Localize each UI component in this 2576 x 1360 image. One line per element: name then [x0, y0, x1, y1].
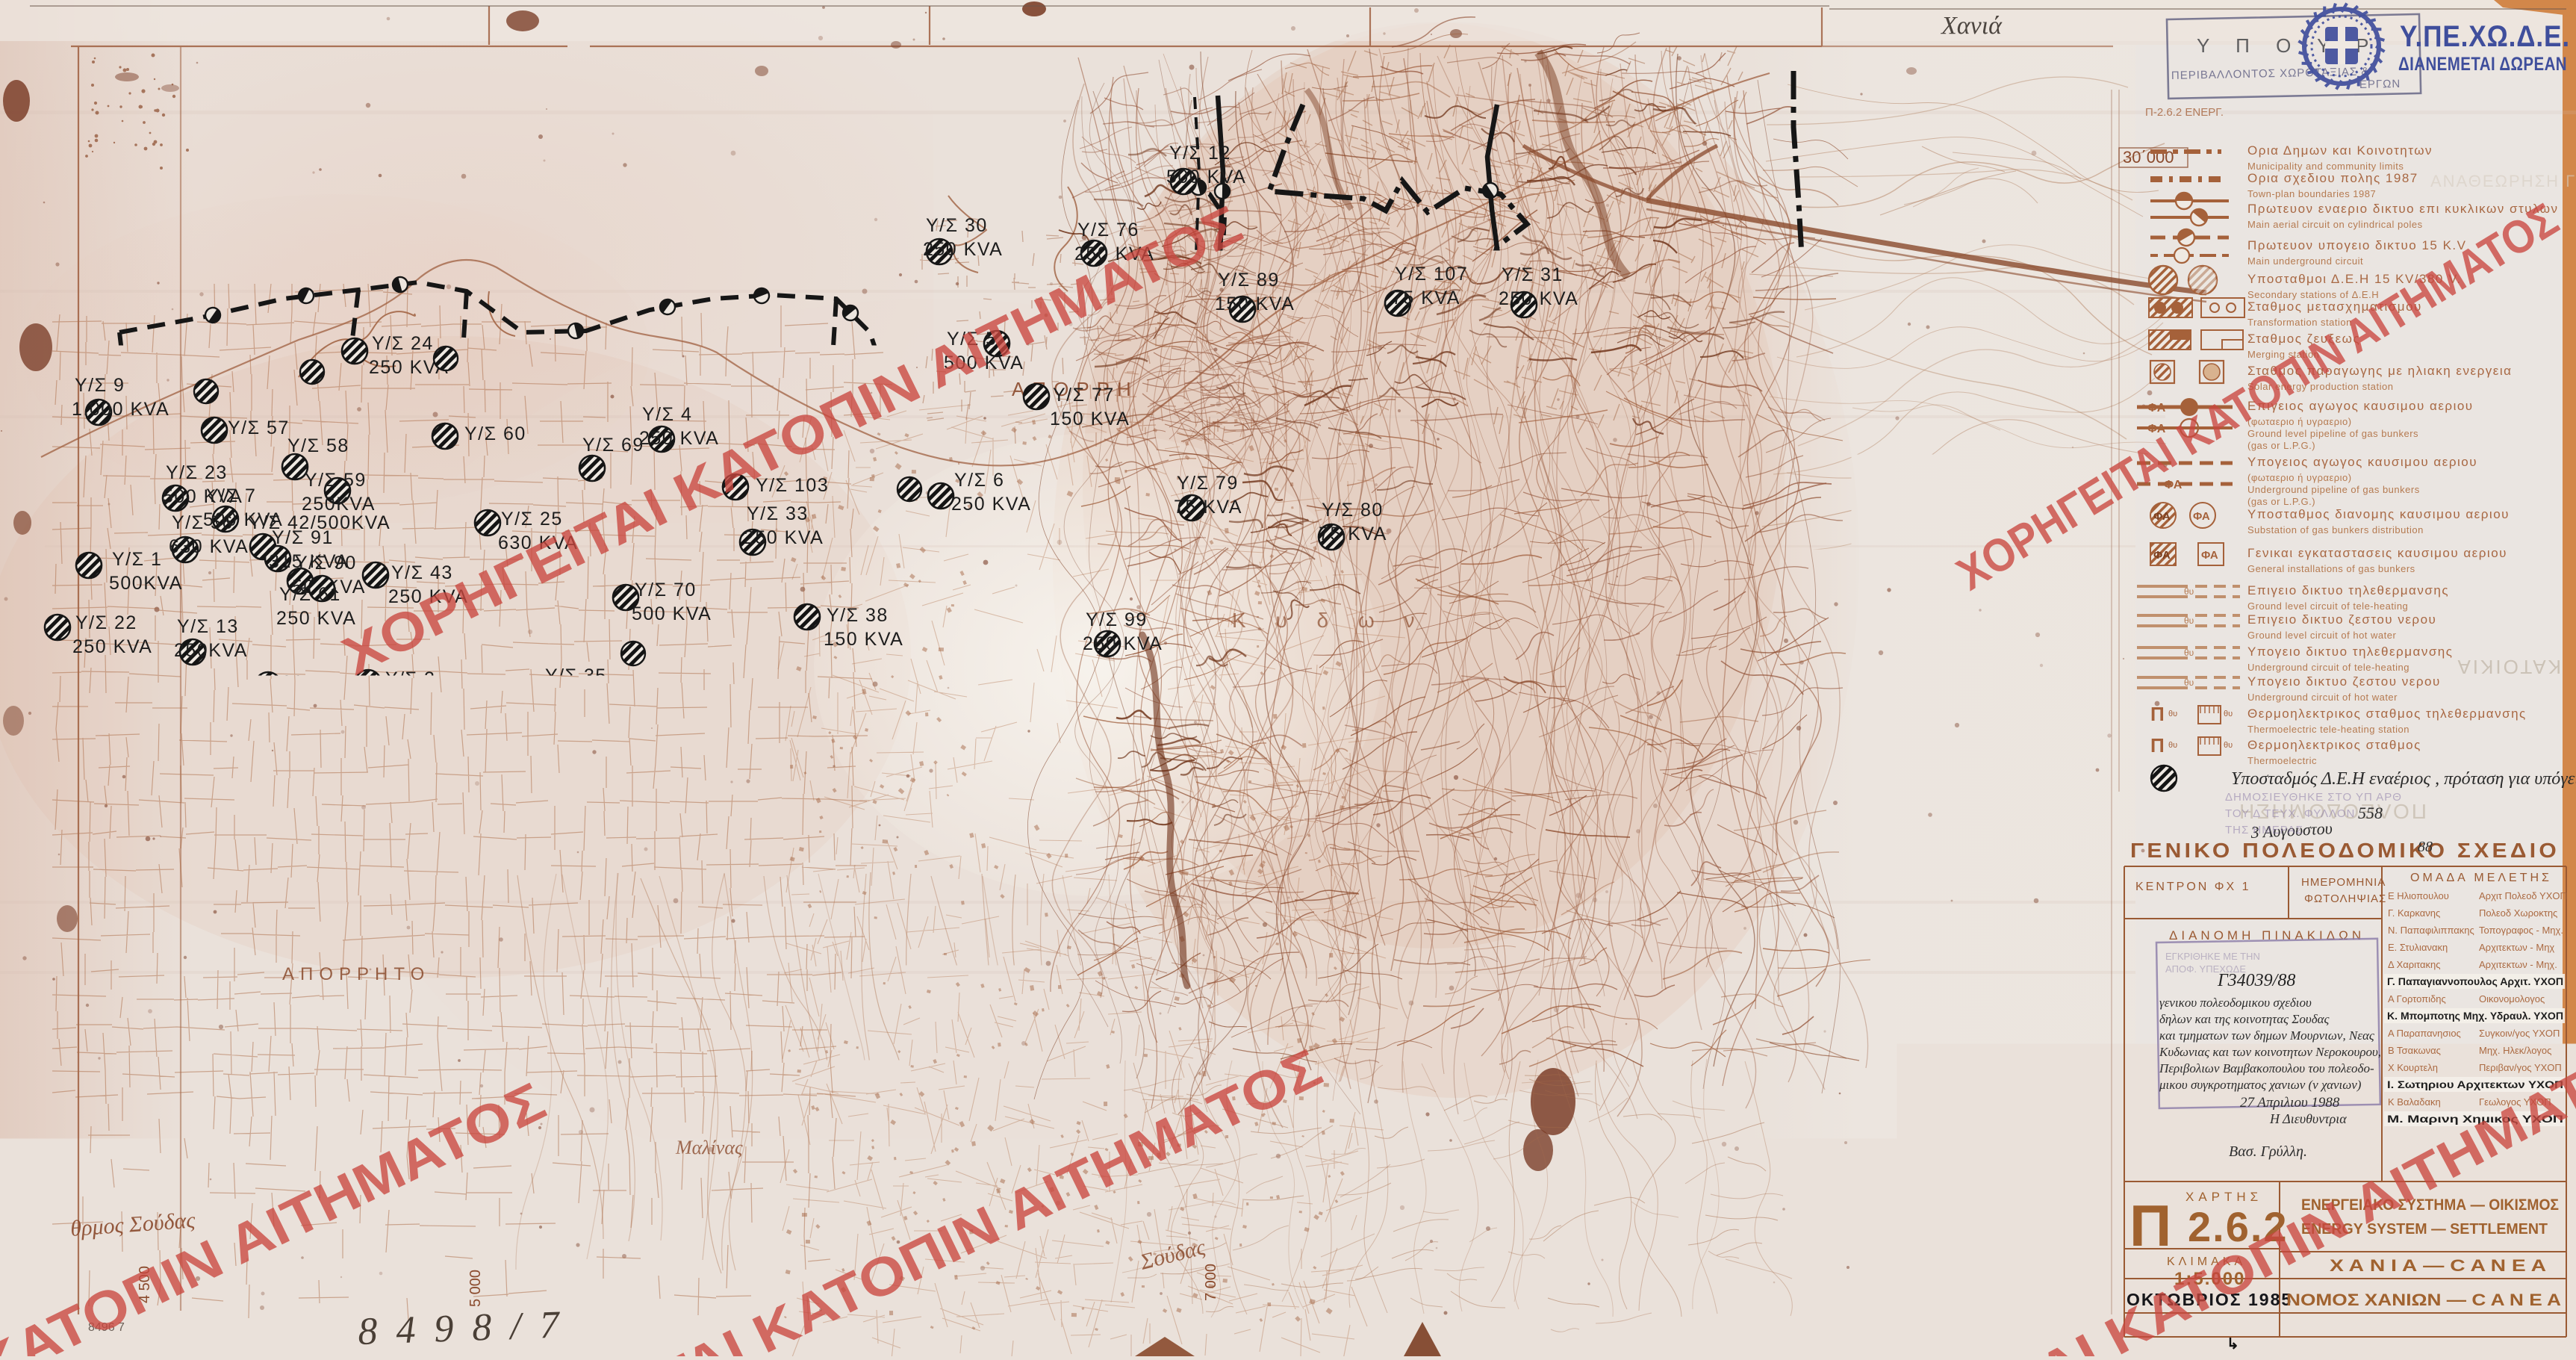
svg-text:Υ/Σ 79: Υ/Σ 79	[1177, 473, 1239, 494]
svg-text:Υ/Σ 74: Υ/Σ 74	[826, 745, 888, 766]
svg-text:Υπογειος αγωγος καυσιμου αεριο: Υπογειος αγωγος καυσιμου αεριου	[2247, 455, 2477, 469]
svg-text:(gas or L.P.G.): (gas or L.P.G.)	[2247, 496, 2315, 507]
svg-text:μικου συγκροτηματος χανιων (ν: μικου συγκροτηματος χανιων (ν χανιων)	[2159, 1078, 2362, 1092]
svg-text:Υ/Σ 38: Υ/Σ 38	[827, 605, 889, 626]
svg-text:Υ/Σ 52: Υ/Σ 52	[53, 993, 115, 1013]
svg-text:Υ/Σ 63: Υ/Σ 63	[434, 894, 496, 915]
svg-text:Α Παραπανησιος: Α Παραπανησιος	[2388, 1028, 2461, 1039]
svg-text:250 KVA: 250 KVA	[724, 922, 804, 943]
svg-text:Βασ. Γρύλλη.: Βασ. Γρύλλη.	[2229, 1143, 2307, 1160]
svg-text:ΕΓΚΡΙΘΗΚΕ ΜΕ ΤΗΝ: ΕΓΚΡΙΘΗΚΕ ΜΕ ΤΗΝ	[2165, 951, 2260, 962]
svg-text:Υ/Σ 7: Υ/Σ 7	[206, 485, 256, 506]
svg-text:500 KVA: 500 KVA	[1166, 167, 1246, 187]
svg-text:Υποσταδμός Δ.Ε.Η εναέριος ,: Υποσταδμός Δ.Ε.Η εναέριος , πρόταση για …	[2231, 769, 2576, 789]
svg-text:ΑΠΟΡΡΗΤΟ: ΑΠΟΡΡΗΤΟ	[1941, 792, 2075, 810]
svg-text:5 000: 5 000	[467, 1270, 484, 1307]
svg-text:29 000: 29 000	[2065, 845, 2113, 863]
svg-text:250 KVA: 250 KVA	[1083, 633, 1163, 654]
svg-text:250 KVA: 250 KVA	[923, 239, 1003, 260]
svg-text:Πρωτευον υπογειο δικτυο 15: Πρωτευον υπογειο δικτυο 15 K.V	[2247, 238, 2466, 252]
svg-text:Ε. Στυλιανακη: Ε. Στυλιανακη	[2388, 942, 2448, 953]
svg-text:Υ.ΠΕ.ΧΩ.Δ.Ε.: Υ.ΠΕ.ΧΩ.Δ.Ε.	[2400, 20, 2570, 53]
svg-text:Υ/Σ 4: Υ/Σ 4	[642, 404, 692, 425]
svg-text:ΦΑ: ΦΑ	[2153, 510, 2171, 523]
svg-text:Ν. Παπαφιλιππακης: Ν. Παπαφιλιππακης	[2388, 925, 2474, 936]
svg-text:Υ/Σ 66: Υ/Σ 66	[582, 993, 644, 1013]
svg-text:Δ Χαριτακης: Δ Χαριτακης	[2388, 959, 2441, 970]
svg-text:Υ/Σ 104: Υ/Σ 104	[207, 836, 280, 857]
svg-text:Υ/Σ 26: Υ/Σ 26	[311, 818, 373, 839]
svg-text:150 KVA: 150 KVA	[1050, 409, 1130, 429]
svg-text:θυ: θυ	[2168, 710, 2177, 718]
svg-text:Υ/Σ 32: Υ/Σ 32	[243, 672, 305, 693]
svg-text:Underground circuit of hot wat: Underground circuit of hot water	[2247, 692, 2398, 703]
svg-text:250 KVA: 250 KVA	[277, 1041, 357, 1062]
svg-text:Π: Π	[2150, 703, 2165, 725]
svg-text:ΔΗΜΟΣΙΕΥΘΗΚΕ ΣΤΟ ΥΠ ΑΡΘ: ΔΗΜΟΣΙΕΥΘΗΚΕ ΣΤΟ ΥΠ ΑΡΘ	[2225, 791, 2402, 804]
svg-text:Β Τσακωνας: Β Τσακωνας	[2388, 1045, 2441, 1056]
svg-text:Αρχιτεκτων - Μηχ: Αρχιτεκτων - Μηχ	[2479, 942, 2554, 953]
svg-text:Υ/Σ 58: Υ/Σ 58	[287, 435, 349, 456]
svg-text:500 KVA: 500 KVA	[632, 603, 712, 624]
svg-text:ΦΑ: ΦΑ	[2201, 549, 2218, 562]
svg-text:θυ: θυ	[2224, 710, 2233, 718]
svg-text:Πολεοδ Χωροκτης: Πολεοδ Χωροκτης	[2479, 907, 2557, 919]
svg-text:75 KVA: 75 KVA	[1392, 288, 1460, 308]
svg-text:ΗΜΕΡΟΜΗΝΙΑ: ΗΜΕΡΟΜΗΝΙΑ	[2301, 876, 2386, 889]
svg-text:ΤΗΣ ΗΜΕΡΑΣ: ΤΗΣ ΗΜΕΡΑΣ	[2225, 824, 2303, 836]
svg-text:Υ/Σ 69: Υ/Σ 69	[582, 435, 644, 456]
svg-text:Town-plan boundaries 1987: Town-plan boundaries 1987	[2247, 188, 2376, 199]
svg-text:250KVA: 250KVA	[308, 842, 382, 863]
svg-text:δηλων και της κοινοτητας Σουδ: δηλων και της κοινοτητας Σουδας	[2159, 1012, 2330, 1026]
svg-text:Υ/Σ 72: Υ/Σ 72	[727, 805, 789, 826]
svg-text:Υ/Σ 89: Υ/Σ 89	[1218, 270, 1280, 291]
svg-text:250 KVA: 250 KVA	[1499, 288, 1578, 309]
svg-text:General installations of gas b: General installations of gas bunkers	[2247, 563, 2415, 574]
svg-text:Χ Κουρτελη: Χ Κουρτελη	[2388, 1062, 2438, 1073]
svg-text:75 KVA: 75 KVA	[1319, 524, 1387, 544]
svg-text:Secondary stations of Δ.Ε.Η: Secondary stations of Δ.Ε.Η	[2247, 289, 2379, 300]
svg-text:7 000: 7 000	[1203, 1264, 1219, 1301]
svg-text:Οικονομολογος: Οικονομολογος	[2479, 993, 2545, 1005]
svg-text:250KVA: 250KVA	[174, 640, 248, 661]
svg-text:ΔΙΑΝΕΜΕΤΑΙ ΔΩΡΕΑΝ: ΔΙΑΝΕΜΕΤΑΙ ΔΩΡΕΑΝ	[2398, 54, 2567, 75]
svg-text:(gas or L.P.G.): (gas or L.P.G.)	[2247, 440, 2315, 451]
svg-text:88: 88	[2418, 839, 2433, 855]
svg-text:Χανιά: Χανιά	[1940, 12, 2003, 40]
svg-text:Μηχ. Ηλεκ/λογος: Μηχ. Ηλεκ/λογος	[2479, 1045, 2551, 1056]
svg-text:400 KVA: 400 KVA	[382, 692, 462, 713]
svg-text:Υ/Σ 57: Υ/Σ 57	[228, 417, 290, 438]
svg-text:Υ/Σ 22: Υ/Σ 22	[75, 612, 137, 633]
svg-text:Α Γορτοπιδης: Α Γορτοπιδης	[2388, 993, 2446, 1005]
svg-text:ΟΜΑΔΑ ΜΕΛΕΤΗΣ: ΟΜΑΔΑ ΜΕΛΕΤΗΣ	[2410, 872, 2552, 884]
svg-text:Υ/Σ 80: Υ/Σ 80	[1322, 500, 1384, 521]
svg-text:Ε Ηλιοπουλου: Ε Ηλιοπουλου	[2388, 890, 2449, 901]
svg-text:Υπογειο δικτυο τηλεθερμανσης: Υπογειο δικτυο τηλεθερμανσης	[2247, 645, 2453, 659]
svg-text:Περιβαν/γος ΥΧΟΠ: Περιβαν/γος ΥΧΟΠ	[2479, 1062, 2562, 1073]
svg-text:Υ/Σ 88: Υ/Σ 88	[1174, 715, 1236, 736]
svg-text:Υ/Σ 107: Υ/Σ 107	[1395, 264, 1468, 285]
svg-text:400 KVA: 400 KVA	[317, 918, 397, 939]
svg-text:Περιβολιων Βαμβακοπουλου του π: Περιβολιων Βαμβακοπουλου του πολεοδο-	[2159, 1061, 2374, 1075]
svg-text:500KVA: 500KVA	[628, 712, 702, 733]
svg-text:Υ/Σ 12: Υ/Σ 12	[1169, 143, 1231, 164]
svg-text:Γ34039/88: Γ34039/88	[2217, 971, 2295, 990]
svg-text:ΧΑΡΤΗΣ: ΧΑΡΤΗΣ	[2185, 1190, 2262, 1204]
svg-text:Επιγειο δικτυο τηλεθερμανσης: Επιγειο δικτυο τηλεθερμανσης	[2247, 583, 2449, 597]
svg-text:250 KVA: 250 KVA	[502, 784, 582, 805]
svg-text:6 000: 6 000	[710, 1264, 727, 1301]
svg-text:250 KVA: 250 KVA	[951, 494, 1031, 515]
svg-text:Υποσταθμος διανομης καυσιμου α: Υποσταθμος διανομης καυσιμου αεριου	[2247, 507, 2510, 521]
svg-text:27 Απριλιου 1988: 27 Απριλιου 1988	[2240, 1095, 2340, 1111]
svg-text:Υ/Σ 91: Υ/Σ 91	[272, 527, 334, 548]
svg-text:ΦΑ: ΦΑ	[2147, 402, 2166, 414]
svg-text:Υ/Σ 36: Υ/Σ 36	[126, 795, 188, 816]
svg-text:Υ/Σ 44: Υ/Σ 44	[623, 1093, 685, 1114]
svg-text:Υ/Σ 29: Υ/Σ 29	[1040, 752, 1102, 773]
svg-text:Υ/Σ 1: Υ/Σ 1	[112, 549, 162, 570]
svg-text:Υ/Σ 35: Υ/Σ 35	[545, 665, 607, 686]
svg-text:Γενικαι εγκαταστασεις καυσιμου: Γενικαι εγκαταστασεις καυσιμου αεριου	[2247, 546, 2507, 560]
svg-text:Αρχιτεκτων - Μηχ.: Αρχιτεκτων - Μηχ.	[2479, 959, 2557, 970]
svg-text:Ground level circuit of hot wa: Ground level circuit of hot water	[2247, 630, 2396, 641]
svg-text:250 KVA: 250 KVA	[204, 860, 284, 881]
svg-text:Π-2.6.2 ΕΝΕΡΓ.: Π-2.6.2 ΕΝΕΡΓ.	[2145, 106, 2224, 119]
svg-text:θυ: θυ	[2184, 648, 2194, 658]
svg-text:150 KVA: 150 KVA	[843, 925, 923, 946]
svg-text:50 KVA: 50 KVA	[1171, 739, 1239, 760]
svg-text:Thermoelectric: Thermoelectric	[2247, 755, 2317, 766]
svg-text:Municipality and community lim: Municipality and community limits	[2247, 161, 2404, 172]
svg-text:250KVA: 250KVA	[240, 696, 314, 717]
svg-text:Υ/Σ 39: Υ/Σ 39	[1017, 884, 1079, 904]
svg-text:ΦΑ: ΦΑ	[2193, 510, 2210, 523]
svg-text:Υ/Σ 31: Υ/Σ 31	[1502, 264, 1564, 285]
svg-text:Υ/Σ 27: Υ/Σ 27	[567, 909, 629, 930]
svg-text:Θερμοηλεκτρικος σταθμος: Θερμοηλεκτρικος σταθμος	[2247, 738, 2421, 752]
svg-text:ΕΡΓΩΝ: ΕΡΓΩΝ	[2359, 78, 2401, 91]
svg-text:250 KVA: 250 KVA	[149, 943, 228, 964]
svg-text:Υ/Σ 9: Υ/Σ 9	[75, 375, 125, 396]
svg-text:γενικου πολεοδομικου σχεδιου: γενικου πολεοδομικου σχεδιου	[2159, 996, 2312, 1010]
svg-text:Χ Α Ν Ι Α — C A N E A: Χ Α Ν Ι Α — C A N E A	[2330, 1256, 2546, 1275]
svg-text:250 KVA: 250 KVA	[72, 636, 152, 657]
svg-text:Υ/Σ 56: Υ/Σ 56	[172, 512, 234, 533]
svg-text:Συγκοιν/γος ΥΧΟΠ: Συγκοιν/γος ΥΧΟΠ	[2479, 1028, 2560, 1039]
svg-text:Υ/Σ 54: Υ/Σ 54	[220, 766, 281, 786]
svg-text:ΝΟΜΟΣ ΧΑΝΙΩΝ — C A N E: ΝΟΜΟΣ ΧΑΝΙΩΝ — C A N E A	[2286, 1291, 2561, 1309]
svg-text:50 KVA: 50 KVA	[63, 1205, 131, 1226]
svg-text:ΤΟΥ Δ ΤΕΥΧ. ΦΥΛΛΟΝ: ΤΟΥ Δ ΤΕΥΧ. ΦΥΛΛΟΝ	[2225, 807, 2355, 820]
svg-text:Κ. Μπομποτης Μηχ. Υδραυλ. ΥΧΟ: Κ. Μπομποτης Μηχ. Υδραυλ. ΥΧΟΠ	[2387, 1010, 2563, 1022]
svg-text:θυ: θυ	[2184, 586, 2194, 597]
svg-text:250KVA: 250KVA	[134, 729, 208, 750]
svg-text:Υ/Σ 14: Υ/Σ 14	[280, 1017, 342, 1038]
svg-text:250 KVA: 250 KVA	[431, 918, 511, 939]
svg-text:Υ/Σ 71: Υ/Σ 71	[740, 697, 802, 718]
svg-text:Underground pipeline of gas bu: Underground pipeline of gas bunkers	[2247, 484, 2420, 495]
svg-text:ΑΝΑΘΕΩΡΗΣΗ ΓΠΣ: ΑΝΑΘΕΩΡΗΣΗ ΓΠΣ	[2430, 172, 2576, 190]
svg-text:150 KVA: 150 KVA	[824, 629, 903, 650]
svg-text:Υπογειο δικτυο ζεστου νερου: Υπογειο δικτυο ζεστου νερου	[2247, 674, 2441, 689]
svg-text:150 KVA: 150 KVA	[1037, 776, 1117, 797]
svg-text:Υ/Σ 6: Υ/Σ 6	[954, 470, 1004, 491]
svg-text:Υ/Σ 23: Υ/Σ 23	[166, 462, 228, 483]
svg-text:50 KVA: 50 KVA	[1014, 907, 1083, 928]
svg-text:250 KVA: 250 KVA	[276, 608, 356, 629]
svg-text:Μαλίνας: Μαλίνας	[675, 1137, 743, 1158]
svg-text:ΚΕΝΤΡΟΝ ΦΧ 1: ΚΕΝΤΡΟΝ ΦΧ 1	[2135, 881, 2251, 893]
svg-text:(φωταεριο ή υγραεριο): (φωταεριο ή υγραεριο)	[2247, 472, 2352, 483]
svg-text:Υ/Σ 24: Υ/Σ 24	[372, 333, 434, 354]
svg-text:Substation of gas bunkers dist: Substation of gas bunkers distribution	[2247, 524, 2424, 535]
svg-text:Υ/Σ 73: Υ/Σ 73	[727, 898, 789, 919]
svg-text:50 KVA: 50 KVA	[620, 1117, 688, 1138]
svg-text:Υ/Σ 67: Υ/Σ 67	[505, 760, 567, 781]
svg-text:1.000 KVA: 1.000 KVA	[72, 399, 169, 420]
svg-text:250 KVA: 250 KVA	[744, 527, 824, 548]
svg-text:Π: Π	[2129, 1193, 2171, 1258]
svg-text:Γ. Καρκανης: Γ. Καρκανης	[2388, 907, 2440, 919]
svg-text:Επιγειο δικτυο ζεστου νερου: Επιγειο δικτυο ζεστου νερου	[2247, 612, 2436, 627]
svg-text:θυ: θυ	[2184, 677, 2194, 688]
svg-text:ν/Σ: ν/Σ	[282, 1149, 311, 1170]
svg-text:8 4 9 8 / 7: 8 4 9 8 / 7	[357, 1303, 564, 1353]
svg-text:θυ: θυ	[2184, 615, 2194, 626]
svg-text:150 KVA: 150 KVA	[1215, 294, 1295, 314]
svg-text:Γ. Παπαγιαννοπουλος Αρχιτ. Υ: Γ. Παπαγιαννοπουλος Αρχιτ. ΥΧΟΠ	[2387, 975, 2563, 987]
svg-text:250 KVA: 250 KVA	[639, 428, 719, 449]
svg-text:Υ/Σ 64: Υ/Σ 64	[320, 894, 382, 915]
svg-text:Υ/Σ 28: Υ/Σ 28	[846, 901, 908, 922]
svg-text:Υ/Σ 13: Υ/Σ 13	[177, 616, 239, 637]
svg-text:Main underground circuit: Main underground circuit	[2247, 255, 2363, 267]
svg-text:Θερμοηλεκτρικος σταθμος τηλεθε: Θερμοηλεκτρικος σταθμος τηλεθερμανσης	[2247, 707, 2527, 721]
svg-text:ΓΕΝΙΚΟ ΠΟΛΕΟΔΟΜΙΚΟ ΣΧΕΔΙΟ: ΓΕΝΙΚΟ ΠΟΛΕΟΔΟΜΙΚΟ ΣΧΕΔΙΟ	[2130, 839, 2560, 862]
svg-text:558: 558	[2358, 804, 2383, 822]
svg-text:Κυδωνιας και των κοινοτητων Νε: Κυδωνιας και των κοινοτητων Νεροκουρου,	[2159, 1045, 2381, 1059]
svg-text:Υ/Σ 85: Υ/Σ 85	[66, 1182, 128, 1202]
svg-text:Υ/Σ 33: Υ/Σ 33	[747, 503, 809, 524]
svg-text:Υ/Σ 3: Υ/Σ 3	[631, 688, 681, 709]
svg-text:Υ/Σ 77: Υ/Σ 77	[1053, 385, 1115, 406]
svg-text:Υ/Σ 99: Υ/Σ 99	[1086, 609, 1148, 630]
svg-text:250 KVA: 250 KVA	[123, 819, 203, 840]
svg-text:Κ υ δ ω ν: Κ υ δ ω ν	[1232, 609, 1427, 632]
svg-text:Αρχιτ Πολεοδ ΥΧΟΠ: Αρχιτ Πολεοδ ΥΧΟΠ	[2479, 890, 2567, 901]
svg-text:Υ/Σ 55: Υ/Σ 55	[137, 705, 199, 726]
svg-text:150 KVA: 150 KVA	[823, 769, 903, 789]
svg-text:Υ/Σ 100: Υ/Σ 100	[93, 1048, 167, 1069]
svg-text:Υ/Σ 76: Υ/Σ 76	[1077, 220, 1139, 240]
svg-text:Κ Βαλαδακη: Κ Βαλαδακη	[2388, 1096, 2441, 1108]
svg-text:Ορια σχεδιου πολης 1987: Ορια σχεδιου πολης 1987	[2247, 171, 2418, 185]
svg-text:Ορια Δημων και Κοινοτητων: Ορια Δημων και Κοινοτητων	[2247, 143, 2433, 158]
svg-text:500KVA: 500KVA	[109, 573, 183, 594]
svg-text:630 KVA: 630 KVA	[169, 536, 249, 557]
svg-text:Υ/Σ 60: Υ/Σ 60	[464, 423, 526, 444]
svg-text:Υ/Σ 2: Υ/Σ 2	[385, 668, 435, 689]
svg-text:↳: ↳	[2227, 1336, 2239, 1353]
svg-text:Υ/Σ 30: Υ/Σ 30	[926, 215, 988, 236]
svg-text:Υ/Σ 70: Υ/Σ 70	[635, 580, 697, 600]
svg-text:250 KVA: 250 KVA	[438, 1006, 518, 1027]
svg-text:Ground level pipeline of gas b: Ground level pipeline of gas bunkers	[2247, 428, 2418, 439]
svg-text:ΦΩΤΟΛΗΨΙΑΣ: ΦΩΤΟΛΗΨΙΑΣ	[2304, 892, 2386, 905]
svg-text:ΚΑΤΟΙΚΙΑ: ΚΑΤΟΙΚΙΑ	[2455, 656, 2561, 678]
svg-text:160 KVA: 160 KVA	[564, 933, 644, 954]
svg-text:ΑΠΟΡΡΗΤΟ: ΑΠΟΡΡΗΤΟ	[282, 964, 430, 984]
svg-text:250 KVA: 250 KVA	[542, 689, 622, 710]
svg-text:Thermoelectric tele-heating st: Thermoelectric tele-heating station	[2247, 724, 2409, 735]
svg-text:Underground circuit of tele-he: Underground circuit of tele-heating	[2247, 662, 2409, 673]
svg-text:Ground level circuit of tele-h: Ground level circuit of tele-heating	[2247, 600, 2408, 612]
svg-text:75 KVA: 75 KVA	[1174, 497, 1242, 518]
svg-text:Π: Π	[2150, 734, 2165, 757]
svg-text:θυ: θυ	[2168, 741, 2177, 750]
svg-text:250KVA: 250KVA	[302, 494, 376, 515]
svg-text:Υ/Σ 65: Υ/Σ 65	[441, 982, 503, 1003]
svg-text:ΦΑ: ΦΑ	[2153, 549, 2171, 562]
svg-text:Η Διευθυντρια: Η Διευθυντρια	[2269, 1111, 2347, 1126]
svg-text:Main aerial circuit on cylindr: Main aerial circuit on cylindrical poles	[2247, 219, 2423, 230]
svg-text:50 KVA: 50 KVA	[436, 1183, 505, 1204]
svg-text:Υ/Σ 53: Υ/Σ 53	[152, 919, 214, 940]
svg-text:Υ/Σ 90: Υ/Σ 90	[295, 553, 357, 574]
svg-text:Τοπογραφος - Μηχ.: Τοπογραφος - Μηχ.	[2479, 925, 2563, 936]
svg-text:Υ/Σ 61: Υ/Σ 61	[279, 584, 341, 605]
svg-text:και τμηματων των δημων Μουρνιω: και τμηματων των δημων Μουρνιων, Νεας	[2159, 1028, 2374, 1043]
svg-text:Υ/Σ 59: Υ/Σ 59	[305, 470, 367, 491]
svg-text:θυ: θυ	[2224, 741, 2233, 750]
